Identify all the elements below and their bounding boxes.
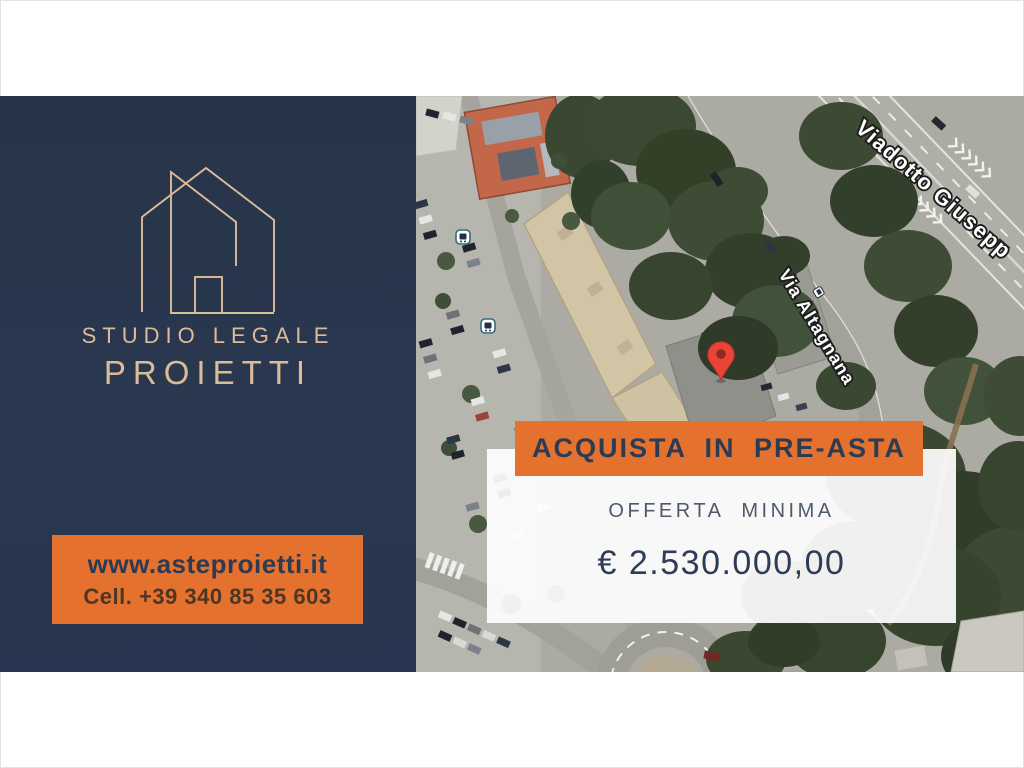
- brand-panel: STUDIO LEGALE PROIETTI www.asteproietti.…: [0, 96, 416, 672]
- contact-card: www.asteproietti.it Cell. +39 340 85 35 …: [52, 535, 363, 624]
- offer-label: OFFERTA MINIMA: [608, 500, 834, 523]
- satellite-map: Viadotto Giusepp Via Altagnana OFFERTA M…: [416, 96, 1024, 672]
- flyer: STUDIO LEGALE PROIETTI www.asteproietti.…: [0, 96, 1024, 672]
- house-outline-icon: [134, 160, 282, 320]
- brand-name-line1: STUDIO LEGALE: [0, 320, 416, 352]
- preasta-banner: ACQUISTA IN PRE-ASTA: [515, 421, 923, 476]
- website-label: www.asteproietti.it: [88, 549, 328, 580]
- phone-label: Cell. +39 340 85 35 603: [83, 584, 331, 610]
- bus-stop-icon: [456, 230, 470, 244]
- brand-name: STUDIO LEGALE PROIETTI: [0, 320, 416, 394]
- offer-amount: € 2.530.000,00: [598, 544, 846, 583]
- brand-name-line2: PROIETTI: [0, 352, 416, 394]
- flyer-screenshot: STUDIO LEGALE PROIETTI www.asteproietti.…: [0, 0, 1024, 768]
- bus-stop-icon: [481, 319, 495, 333]
- preasta-banner-label: ACQUISTA IN PRE-ASTA: [532, 433, 906, 464]
